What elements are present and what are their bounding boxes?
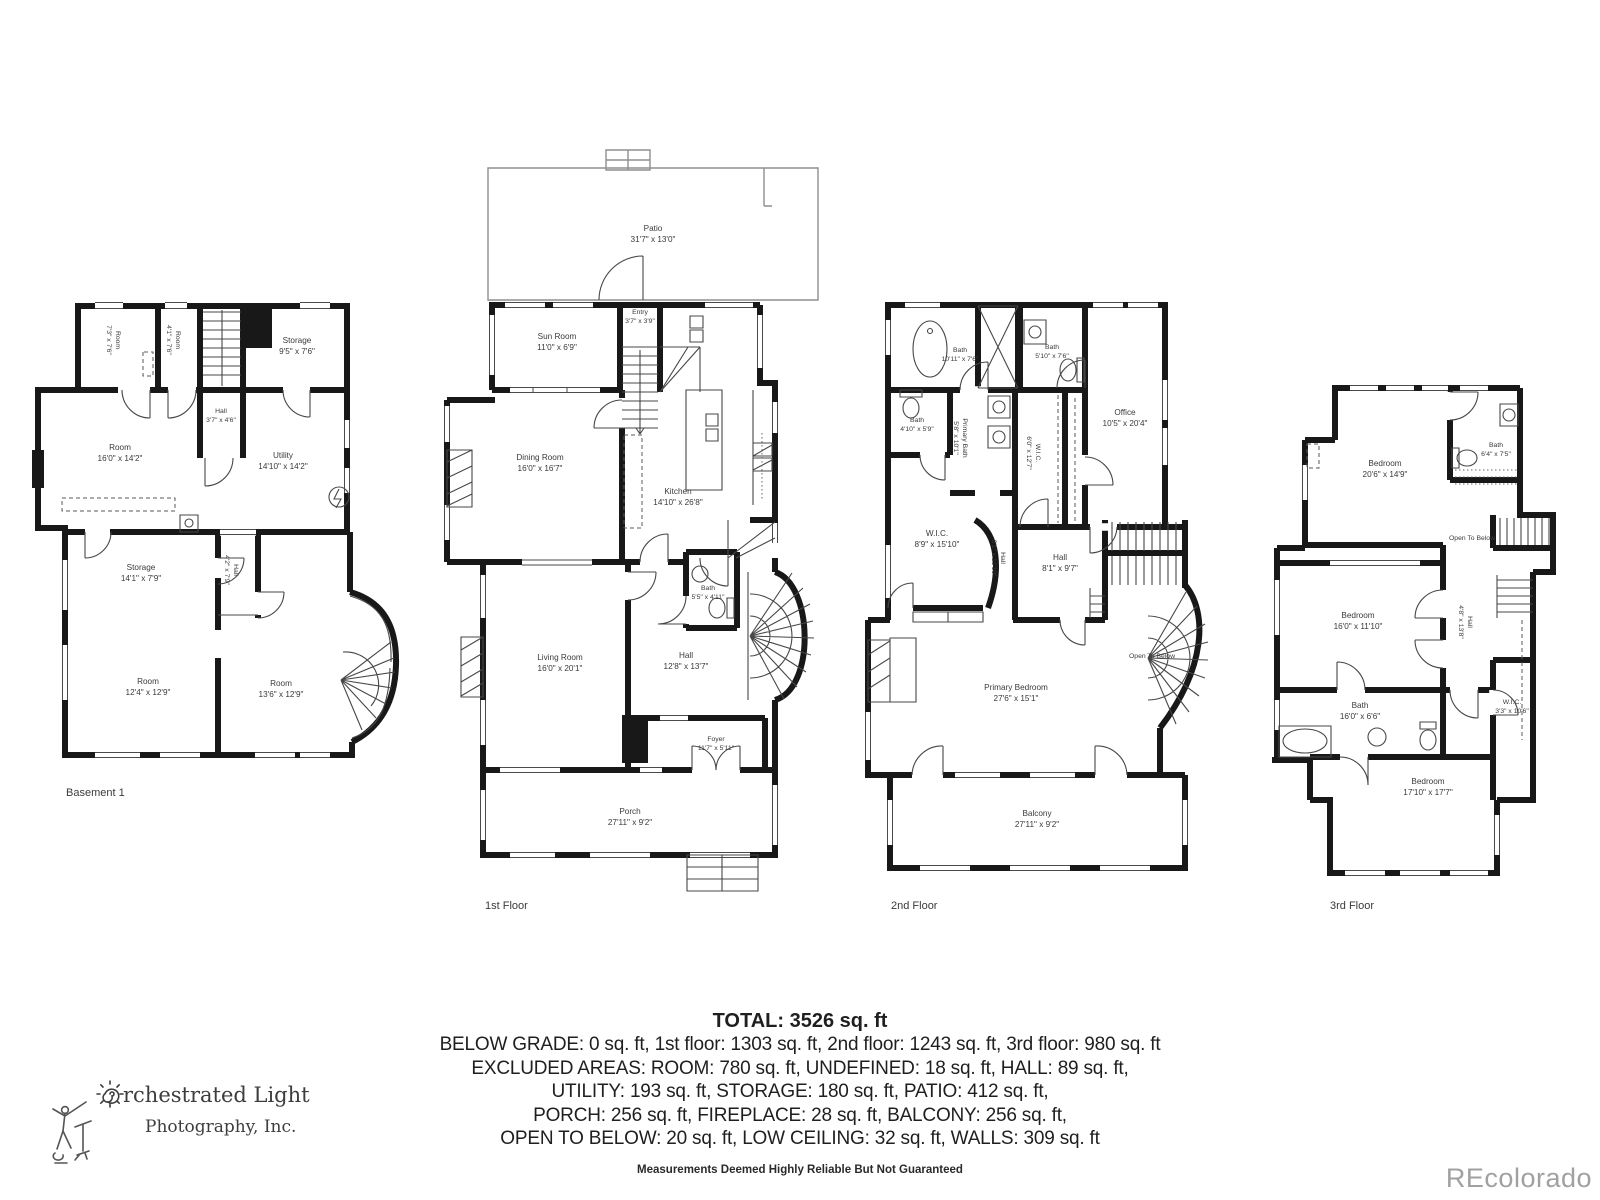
tub-drain-icon: [928, 329, 933, 334]
sink-icon: [993, 431, 1005, 443]
photographer-logo: rchestrated Light Photography, Inc.: [45, 1055, 345, 1175]
room-label: Storage14'1" x 7'9": [121, 563, 161, 583]
wall-pier: [32, 450, 44, 488]
floor-label: 1st Floor: [485, 900, 528, 912]
second-floor-walls: [868, 302, 1199, 871]
toilet-icon: [1420, 730, 1436, 750]
floor-label: 2nd Floor: [891, 900, 938, 912]
floor-label: Basement 1: [66, 787, 125, 799]
room-label: Open To Below: [1449, 535, 1495, 542]
room-label: Bath5'5" x 4'11": [692, 585, 726, 601]
room-label: Room16'0" x 14'2": [98, 443, 143, 463]
room-label: Office10'5" x 20'4": [1103, 408, 1148, 428]
room-label: Porch27'11" x 9'2": [608, 807, 652, 827]
chimney-mass: [243, 303, 272, 348]
third-floor-walls: [1272, 385, 1556, 876]
sink-icon: [185, 519, 193, 527]
kitchen-counter-dashed: [624, 435, 642, 528]
lightning-bolt-icon: [334, 489, 341, 508]
room-label: Bedroom16'0" x 11'10": [1334, 611, 1383, 631]
sink-icon: [1029, 326, 1041, 338]
room-label: Bath16'0" x 6'6": [1340, 701, 1380, 721]
floorplan-sheet: Room7'3" x 7'6" Room4'1" x 7'6" Storage9…: [0, 0, 1600, 1200]
sink-icon: [1503, 409, 1515, 421]
room-label: Bedroom20'6" x 14'9": [1363, 459, 1408, 479]
room-label: Hall8'1" x 9'7": [1042, 553, 1078, 573]
bathtub-icon: [1283, 729, 1327, 753]
sink-icon: [993, 401, 1005, 413]
room-label: Primary Bedroom27'6" x 15'1": [984, 683, 1048, 703]
toilet-icon: [1060, 359, 1076, 381]
chimney-mass: [622, 715, 648, 763]
room-label: Living Room16'0" x 20'1": [537, 653, 583, 673]
conductor-figure-icon: [47, 1101, 103, 1167]
room-label: Room4'1" x 7'6": [165, 325, 181, 355]
room-label: Entry3'7" x 3'9": [625, 309, 655, 325]
logo-line2: Photography, Inc.: [145, 1117, 296, 1137]
room-label: Hall3'7" x 4'6": [206, 408, 236, 424]
floorplan-1st-floor: Patio31'7" x 13'0" Sun Room11'0" x 6'9" …: [445, 150, 819, 912]
floorplan-2nd-floor: Bath10'11" x 7'6" Bath5'10" x 7'6" Bath4…: [866, 302, 1209, 912]
floor-label: 3rd Floor: [1330, 900, 1374, 912]
room-label: Bath4'10" x 5'9": [900, 417, 934, 433]
watermark: REcolorado: [1446, 1163, 1592, 1194]
total-area: TOTAL: 3526 sq. ft: [0, 1009, 1600, 1033]
floorplan-3rd-floor: Bedroom20'6" x 14'9" Bath6'4" x 7'5" Ope…: [1272, 385, 1556, 912]
room-label: Patio31'7" x 13'0": [631, 224, 676, 244]
room-label: Bath6'4" x 7'5": [1481, 442, 1511, 458]
room-label: Sun Room11'0" x 6'9": [537, 332, 577, 352]
room-label: W.I.C.8'9" x 15'10": [915, 529, 960, 549]
room-label: W.I.C.6'0" x 12'7": [1025, 436, 1041, 470]
logo-line1: rchestrated Light: [123, 1083, 310, 1107]
room-label: Hall12'8" x 13'7": [664, 651, 709, 671]
room-label: Bath5'10" x 7'6": [1035, 344, 1069, 360]
room-label: Foyer11'7" x 5'11": [698, 736, 735, 752]
toilet-icon: [903, 398, 919, 418]
floorplan-basement: Room7'3" x 7'6" Room4'1" x 7'6" Storage9…: [32, 303, 396, 800]
room-label: Dining Room16'0" x 16'7": [516, 453, 564, 473]
floor-plans-canvas: Room7'3" x 7'6" Room4'1" x 7'6" Storage9…: [0, 0, 1600, 960]
room-label: Room13'6" x 12'9": [259, 679, 304, 699]
room-label: Hall4'8" x 13'8": [1457, 605, 1473, 639]
room-label: Bedroom17'10" x 17'7": [1403, 777, 1453, 797]
room-label: Open To Below: [1129, 653, 1175, 660]
room-label: Utility14'10" x 14'2": [258, 451, 308, 471]
toilet-icon: [1457, 450, 1477, 466]
room-label: Room12'4" x 12'9": [126, 677, 171, 697]
room-label: Primary Bath5'8" x 10'1": [952, 418, 968, 458]
room-label: W.I.C.3'3" x 10'6": [1495, 699, 1529, 715]
summary-line: BELOW GRADE: 0 sq. ft, 1st floor: 1303 s…: [0, 1033, 1600, 1057]
room-label: Balcony27'11" x 9'2": [1015, 809, 1059, 829]
toilet-icon: [709, 598, 725, 618]
bathtub-icon: [913, 321, 947, 377]
sink-icon: [1368, 728, 1386, 746]
room-label: Room7'3" x 7'6": [105, 325, 121, 355]
room-label: Storage9'5" x 7'6": [279, 336, 315, 356]
sun-spiral-icon: [95, 1079, 125, 1109]
